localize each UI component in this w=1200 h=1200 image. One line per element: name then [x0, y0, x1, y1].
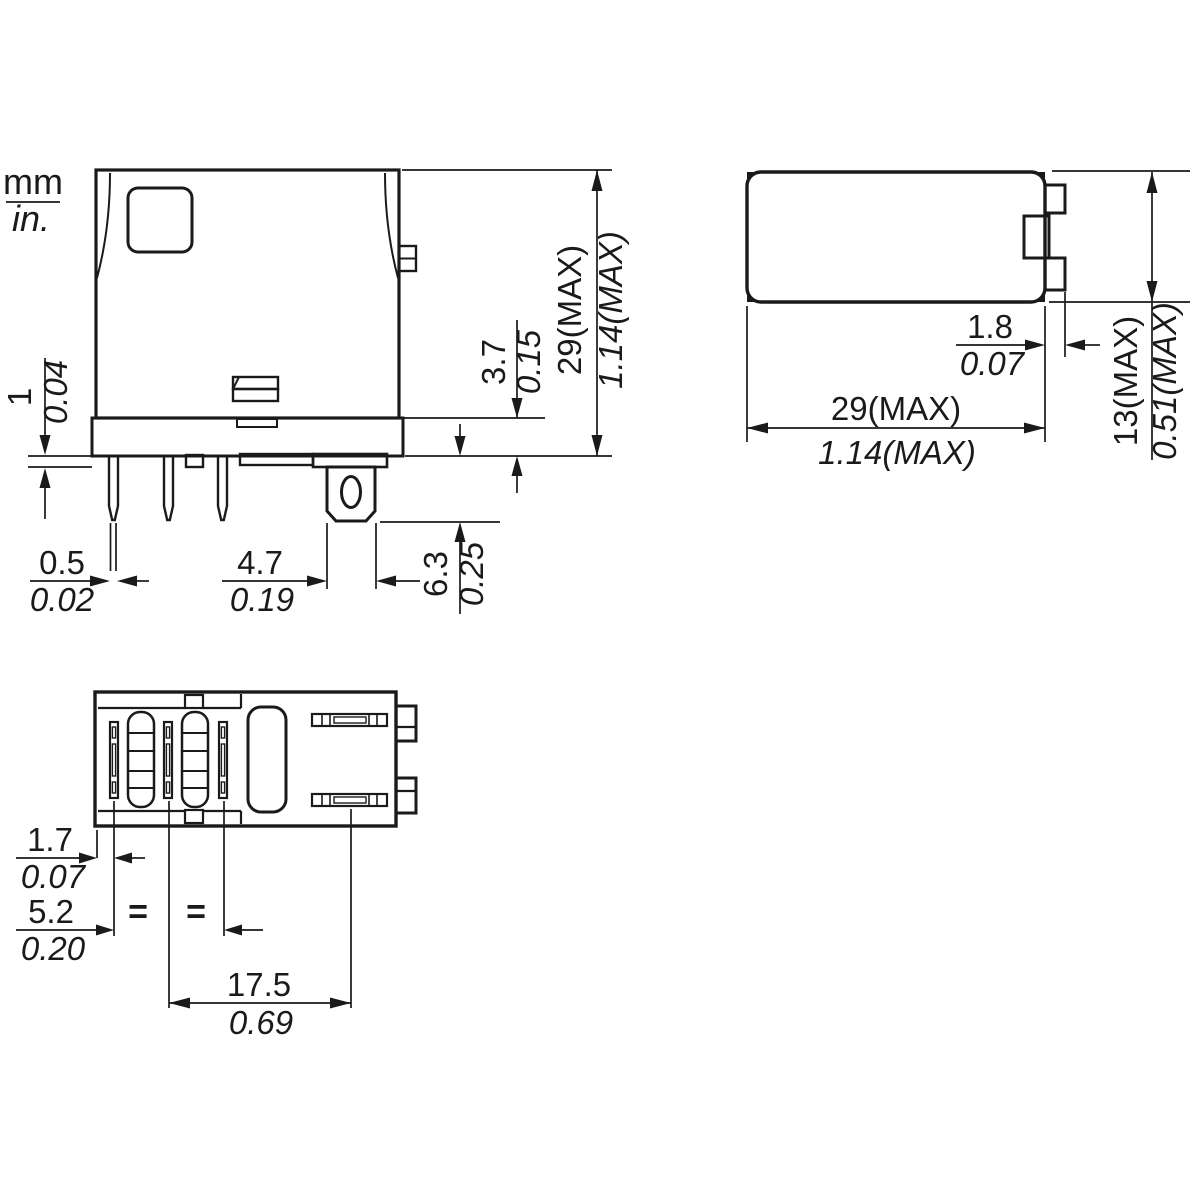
cover-window	[128, 188, 192, 252]
center-opening	[248, 707, 286, 812]
dim-front-standoff: 1 0.04	[1, 358, 74, 519]
front-pins	[109, 456, 227, 520]
dim-bottom-pin-pitch: = = 5.2 0.20	[16, 893, 263, 967]
dim-in: 0.07	[21, 858, 87, 895]
dim-mm: 13(MAX)	[1107, 316, 1144, 446]
dim-in: 0.07	[960, 345, 1026, 382]
arrowhead-up	[592, 170, 603, 191]
dim-top-depth: 13(MAX) 0.51(MAX)	[1107, 172, 1183, 460]
slot-outline	[219, 722, 227, 798]
arrowhead-right	[330, 998, 351, 1009]
tab-body	[396, 706, 416, 741]
equal-mark-2: =	[186, 893, 206, 931]
dim-top-width: 29(MAX) 1.14(MAX)	[747, 390, 1045, 471]
top-body	[747, 172, 1045, 302]
arrowhead-left	[376, 576, 396, 587]
capsule-2	[182, 712, 208, 807]
slot-bottom-mark	[166, 782, 169, 793]
arrowhead-left	[747, 423, 768, 434]
latch-top	[233, 377, 278, 389]
dim-in: 1.14(MAX)	[592, 231, 629, 389]
dim-mm: 6.3	[417, 551, 454, 597]
dim-in: 1.14(MAX)	[818, 434, 976, 471]
pin-slot-3	[219, 722, 227, 798]
technical-drawing-page: mm in.	[0, 0, 1200, 1200]
slot-mid-mark	[166, 744, 169, 776]
top-tab-upper	[1045, 185, 1065, 213]
dim-in: 0.15	[510, 329, 547, 394]
dim-front-base-height: 3.7 0.15	[475, 320, 547, 493]
dim-front-pin-width: 0.5 0.02	[30, 544, 149, 618]
flat-slot-upper	[312, 714, 387, 726]
pin-slot-1	[110, 722, 118, 798]
front-base	[92, 418, 403, 456]
dim-top-tab-protrusion: 1.8 0.07	[956, 308, 1100, 382]
slot-mid-mark	[221, 744, 224, 776]
arrowhead-left	[1065, 340, 1085, 351]
dim-in: 0.19	[230, 581, 294, 618]
dim-in: 0.69	[229, 1004, 293, 1041]
arrowhead-up	[1147, 172, 1158, 193]
bottom-view-dimensions: 1.7 0.07 = = 5.2 0.20 17.5 0.69	[16, 801, 351, 1041]
dim-mm: 29(MAX)	[831, 390, 961, 427]
equal-mark-1: =	[128, 893, 148, 931]
bottom-view	[95, 692, 416, 826]
dim-mm: 29(MAX)	[551, 245, 588, 375]
front-quick-connect-tab	[313, 454, 387, 521]
latch-bottom	[233, 389, 278, 401]
slot-outline	[164, 722, 172, 798]
arrowhead-down	[40, 435, 51, 455]
pin-slot-2	[164, 722, 172, 798]
arrowhead-left	[117, 576, 137, 587]
dim-mm: 0.5	[39, 544, 85, 581]
capsule-1	[128, 712, 154, 807]
arrowhead-down	[592, 435, 603, 456]
slot-outline	[110, 722, 118, 798]
units-mm-label: mm	[3, 161, 63, 202]
dim-in: 0.20	[21, 930, 86, 967]
arrowhead-right	[96, 925, 114, 936]
slot-mid-mark	[334, 717, 366, 723]
slot-top-mark	[221, 727, 224, 738]
dim-mm: 17.5	[227, 966, 291, 1003]
tab-hole	[342, 477, 361, 508]
arrowhead-left	[169, 998, 190, 1009]
slot-mid-mark	[334, 797, 366, 803]
front-view	[92, 170, 416, 521]
front-side-tab	[399, 246, 416, 271]
slot-top-mark	[112, 727, 115, 738]
arrowhead-up	[512, 456, 523, 476]
arrowhead-right	[1025, 340, 1045, 351]
dim-mm: 3.7	[475, 339, 512, 385]
units-in-label: in.	[12, 198, 50, 239]
dim-in: 0.25	[453, 541, 490, 606]
cover-right-taper-line	[385, 173, 398, 278]
front-cover	[96, 170, 399, 418]
dim-front-tab-length: 6.3 0.25	[417, 424, 490, 614]
top-tab-lower	[1045, 258, 1065, 290]
arrowhead-down	[512, 398, 523, 418]
slot-mid-mark	[112, 744, 115, 776]
dim-mm: 1.8	[967, 308, 1013, 345]
tab-body	[396, 778, 416, 813]
arrowhead-right	[307, 576, 327, 587]
capsule-outline	[128, 712, 154, 807]
arrowhead-up	[455, 522, 466, 542]
dim-in: 0.04	[37, 360, 74, 424]
dim-mm: 1	[1, 388, 38, 406]
bottom-side-tab-lower	[396, 778, 416, 813]
dim-mm: 4.7	[237, 544, 283, 581]
dim-in: 0.02	[30, 581, 94, 618]
dim-mm: 1.7	[27, 821, 73, 858]
arrowhead-up	[40, 468, 51, 488]
front-latch	[233, 377, 278, 401]
top-view	[747, 172, 1065, 302]
dim-front-tab-width: 4.7 0.19	[222, 544, 420, 618]
slot-bottom-mark	[221, 782, 224, 793]
rail-bottom-notch	[185, 810, 203, 823]
relay-dimension-drawing: mm in.	[0, 0, 1200, 1200]
cover-left-taper-line	[97, 173, 110, 278]
dim-front-height: 29(MAX) 1.14(MAX)	[551, 170, 629, 456]
pin-1	[109, 456, 118, 520]
dim-mm: 5.2	[28, 893, 74, 930]
dim-bottom-pin-to-tab: 17.5 0.69	[169, 966, 351, 1041]
dim-in: 0.51(MAX)	[1146, 302, 1183, 460]
arrowhead-right	[1024, 423, 1045, 434]
arrowhead-down	[1147, 281, 1158, 302]
units-legend: mm in.	[3, 161, 63, 239]
slot-outline	[312, 794, 387, 806]
capsule-outline	[182, 712, 208, 807]
slot-bottom-mark	[112, 782, 115, 793]
slot-top-mark	[166, 727, 169, 738]
arrowhead-left	[224, 925, 242, 936]
arrowhead-down	[455, 436, 466, 456]
flat-slot-lower	[312, 794, 387, 806]
bottom-side-tab-upper	[396, 706, 416, 741]
pin-2	[164, 456, 173, 520]
pin-3	[218, 456, 227, 520]
dim-bottom-edge-to-pin: 1.7 0.07	[16, 821, 145, 895]
rail-top-notch	[185, 695, 203, 708]
arrowhead-left	[114, 853, 132, 864]
top-view-dimensions: 1.8 0.07 29(MAX) 1.14(MAX) 13(MAX) 0.51(…	[747, 171, 1190, 471]
base-notch	[237, 419, 277, 427]
slot-outline	[312, 714, 387, 726]
